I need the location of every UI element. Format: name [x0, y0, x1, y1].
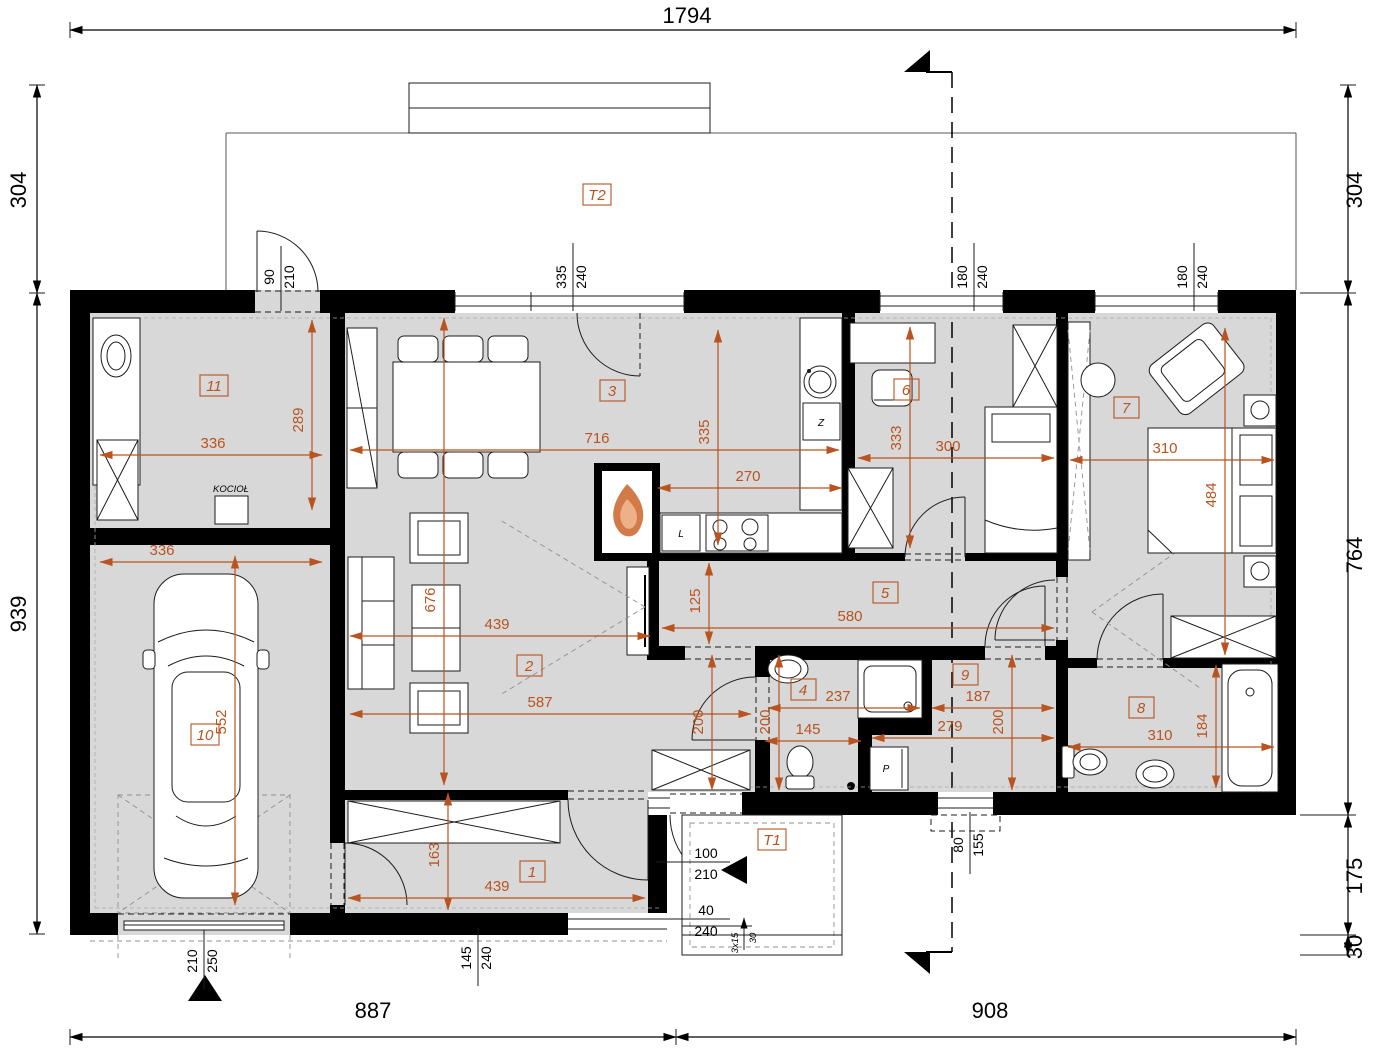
window-hall [568, 913, 667, 935]
dim-hall-width: 439 [484, 878, 509, 895]
dim-kitchen-width: 716 [584, 430, 609, 447]
room-label-4: 4 [799, 682, 807, 699]
dim-room4-width: 237 [825, 688, 850, 705]
room-label-8: 8 [1137, 700, 1146, 717]
label-win-room6-w: 180 [954, 265, 970, 289]
label-win-kitchen-h: 240 [573, 265, 589, 289]
label-entry-side-h: 240 [694, 923, 718, 939]
room-label-7: 7 [1122, 400, 1131, 417]
boiler [215, 496, 248, 524]
dim-left-main: 939 [6, 596, 31, 633]
dim-room4-depth: 200 [757, 709, 774, 734]
dim-right-top: 304 [1342, 172, 1367, 209]
dim-kitchen-depth: 335 [696, 419, 713, 444]
dim-total-width: 1794 [663, 3, 712, 28]
dim-right-main: 764 [1342, 537, 1367, 574]
dim-room11-width: 336 [200, 435, 225, 452]
dim-room11-depth: 289 [290, 407, 307, 432]
dim-right-step: 30 [1342, 935, 1367, 959]
label-fridge: L [678, 529, 684, 540]
dim-right-porch: 175 [1342, 858, 1367, 895]
label-door-utility-w: 90 [261, 269, 277, 285]
label-garage-door-h: 250 [204, 949, 220, 973]
label-boiler: KOCIOŁ [213, 484, 249, 495]
dim-room4-lower: 145 [795, 721, 820, 738]
dim-room7-depth: 484 [1203, 482, 1220, 507]
label-entry-door-h: 210 [694, 866, 718, 882]
label-entry-door-w: 100 [694, 845, 718, 861]
dim-room8-width: 310 [1147, 727, 1172, 744]
room-label-t2: T2 [588, 187, 606, 204]
dim-garage-width: 336 [149, 542, 174, 559]
dim-room6-depth: 333 [888, 425, 905, 450]
room-label-10: 10 [197, 727, 214, 744]
window-room9 [931, 792, 1000, 831]
label-entry-side-w: 40 [698, 902, 714, 918]
dim-living-total: 587 [527, 694, 552, 711]
dim-bottom-left: 887 [355, 998, 392, 1023]
label-win-room6-h: 240 [974, 265, 990, 289]
dim-living-width: 439 [484, 616, 509, 633]
window-kitchen [455, 290, 684, 313]
room-label-2: 2 [524, 658, 534, 675]
dim-room9-lower: 279 [937, 718, 962, 735]
window-room7 [1095, 290, 1218, 313]
room-label-9: 9 [961, 667, 970, 684]
room-label-3: 3 [608, 383, 617, 400]
label-garage-door-w: 210 [184, 949, 200, 973]
label-win-room7-h: 240 [1194, 265, 1210, 289]
label-win-hall-w: 145 [458, 946, 474, 970]
dim-hall-depth: 163 [426, 842, 443, 867]
room-label-1: 1 [528, 864, 536, 881]
label-win-room9-w: 80 [950, 837, 966, 853]
dim-room9-width: 187 [965, 688, 990, 705]
label-washer: P [883, 764, 890, 775]
dim-garage-depth: 552 [213, 709, 230, 734]
dim-left-top: 304 [6, 172, 31, 209]
floor-plan-page: 1794 304 939 304 764 175 30 887 908 336 … [0, 0, 1385, 1050]
dim-living-depth: 676 [422, 587, 439, 612]
fireplace [602, 471, 652, 553]
dim-room6-width: 300 [935, 438, 960, 455]
dim-corridor-depth: 125 [687, 588, 704, 613]
dim-bottom-right: 908 [972, 998, 1009, 1023]
label-win-room9-h: 155 [970, 833, 986, 857]
room-label-6: 6 [902, 382, 911, 399]
dim-room9-depth: 200 [990, 709, 1007, 734]
room-label-5: 5 [881, 585, 890, 602]
label-door-utility-h: 210 [281, 265, 297, 289]
garage-entry-arrow [188, 975, 222, 1001]
dim-corridor-width: 580 [837, 608, 862, 625]
label-win-hall-h: 240 [478, 946, 494, 970]
terrace-t2-outline [226, 83, 1296, 290]
label-sink: Z [817, 418, 825, 429]
window-room6 [880, 290, 1003, 313]
floor-plan-canvas: 1794 304 939 304 764 175 30 887 908 336 … [0, 0, 1385, 1050]
label-win-room7-w: 180 [1174, 265, 1190, 289]
dim-room7-width: 310 [1152, 440, 1177, 457]
label-win-kitchen-w: 335 [553, 265, 569, 289]
label-steps: 3x15 [730, 932, 741, 953]
room-label-11: 11 [206, 378, 222, 395]
room-label-t1: T1 [763, 832, 781, 849]
dim-room8-depth: 184 [1194, 713, 1211, 738]
entry-sidelight [648, 792, 670, 815]
label-step-height: 30 [748, 932, 759, 943]
dim-kitchen-counter: 270 [735, 468, 760, 485]
dim-vestibule-depth: 200 [690, 709, 707, 734]
